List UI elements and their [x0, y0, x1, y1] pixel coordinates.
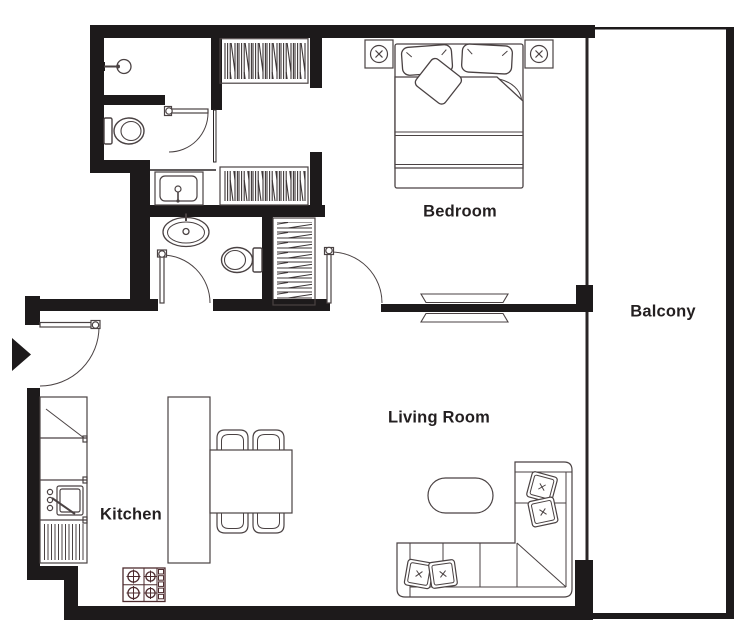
- floor-plan: Bedroom Balcony Living Room Kitchen: [0, 0, 752, 640]
- walls: [25, 25, 734, 620]
- stove-hob: [123, 568, 165, 602]
- wall-light-left: [365, 40, 393, 68]
- sofa-pillow: [528, 497, 559, 528]
- wall-light-right: [525, 40, 553, 68]
- wardrobe-closet-upper: [220, 39, 308, 83]
- pedestal-sink: [163, 214, 209, 247]
- bathroom-toilet: [222, 248, 263, 273]
- kitchen-counter: [40, 397, 87, 563]
- room-label-kitchen: Kitchen: [100, 506, 162, 525]
- entry-door: [40, 321, 100, 387]
- duvet: [395, 77, 523, 168]
- kitchen-island: [168, 397, 210, 563]
- room-label-bedroom: Bedroom: [423, 203, 497, 222]
- entry-arrow: [12, 338, 31, 371]
- linen-closet: [273, 218, 315, 305]
- coffee-table: [428, 478, 493, 513]
- sofa-pillow: [428, 559, 457, 588]
- wc-door: [165, 107, 209, 153]
- wc-partition: [214, 110, 217, 162]
- bathroom-door: [158, 250, 211, 303]
- wardrobe-closet-lower: [220, 167, 308, 205]
- bedroom-door: [325, 247, 383, 303]
- pillow-right: [461, 44, 512, 75]
- double-bed: [395, 44, 523, 188]
- vanity-sink: [155, 172, 203, 205]
- dining-table: [210, 450, 292, 513]
- balcony-window-wall-upper: [586, 38, 589, 285]
- stove-knobs: [159, 570, 164, 599]
- balcony-window-wall-lower: [586, 312, 589, 560]
- wc-toilet: [104, 118, 144, 144]
- room-label-living-room: Living Room: [388, 409, 490, 428]
- room-label-balcony: Balcony: [630, 303, 696, 322]
